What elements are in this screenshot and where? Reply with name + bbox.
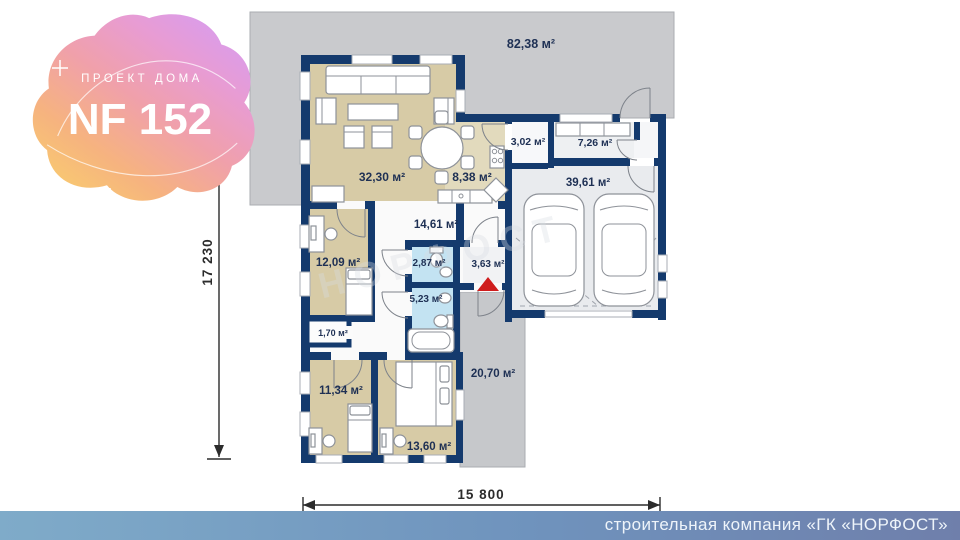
sofa-icon bbox=[326, 66, 430, 94]
dimension-horizontal: 15 800 bbox=[303, 487, 660, 513]
storage-counter-icon bbox=[556, 123, 630, 136]
bathtub-icon bbox=[408, 329, 454, 352]
storage-label: 7,26 м² bbox=[578, 137, 613, 149]
garage-label: 39,61 м² bbox=[566, 177, 610, 189]
bed-bedroom2-icon bbox=[348, 404, 372, 452]
company-name: строительная компания «ГК «НОРФОСТ» bbox=[605, 515, 948, 534]
bedroom3-label: 13,60 м² bbox=[407, 441, 451, 453]
pantry-label: 3,02 м² bbox=[511, 136, 546, 148]
bed-bedroom3-icon bbox=[396, 362, 452, 426]
tv-stand-icon bbox=[312, 186, 344, 202]
hall-label: 14,61 м² bbox=[414, 219, 458, 231]
terrace-side-label: 20,70 м² bbox=[471, 368, 515, 380]
kitchen-label: 8,38 м² bbox=[452, 170, 492, 184]
dimension-horizontal-label: 15 800 bbox=[457, 487, 504, 502]
living-label: 32,30 м² bbox=[359, 170, 405, 184]
dimension-vertical-label: 17 230 bbox=[200, 238, 215, 285]
bath-small-label: 2,87 м² bbox=[413, 258, 447, 269]
logo-title: NF 152 bbox=[68, 95, 212, 144]
floor-plan-svg: НОРФОСТ 82,38 м² 32,30 м² 8,38 м² 3,02 м… bbox=[0, 0, 960, 540]
floor-plan-page: НОРФОСТ 82,38 м² 32,30 м² 8,38 м² 3,02 м… bbox=[0, 0, 960, 540]
closet-label: 1,70 м² bbox=[318, 328, 348, 338]
coffee-table-icon bbox=[348, 104, 398, 120]
terrace-top-label: 82,38 м² bbox=[507, 37, 555, 51]
footer-bar: строительная компания «ГК «НОРФОСТ» bbox=[0, 511, 960, 540]
kitchen-counter-icon bbox=[438, 190, 492, 203]
bedroom2-label: 11,34 м² bbox=[319, 385, 363, 397]
toilet-bath-big-icon bbox=[434, 315, 453, 328]
car-icon-2 bbox=[594, 194, 654, 306]
logo-subtitle: ПРОЕКТ ДОМА bbox=[81, 73, 203, 85]
bedroom1-label: 12,09 м² bbox=[316, 257, 360, 269]
armchair-left-icon bbox=[316, 98, 336, 124]
entry-label: 3,63 м² bbox=[472, 259, 506, 270]
bath-big-label: 5,23 м² bbox=[410, 294, 444, 305]
logo-blob: ПРОЕКТ ДОМА NF 152 bbox=[33, 14, 255, 204]
